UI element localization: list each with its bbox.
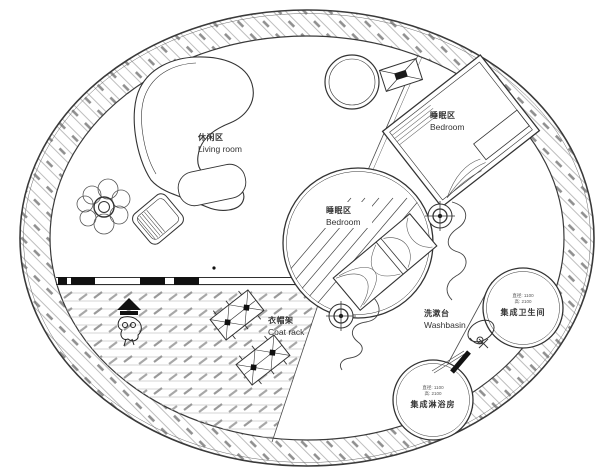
door-leaf-bar: [452, 352, 469, 372]
terrace-wall: [56, 277, 326, 285]
bathroom-spec-1: 直径: 1100: [512, 292, 534, 298]
label-living-zh: 休闲区: [197, 132, 224, 142]
bathroom-spec-2: 高: 2100: [514, 298, 532, 305]
shower-spec-1: 直径: 1100: [422, 384, 444, 390]
potted-plant: [77, 179, 130, 234]
integrated-shower-pod: 直径: 1100 高: 2100 集成淋浴房: [393, 360, 473, 440]
armchair: [130, 191, 187, 247]
label-coat-rack-en: Coat rack: [268, 327, 305, 337]
label-bedroom-top-en: Bedroom: [430, 122, 465, 132]
bathroom-name: 集成卫生间: [500, 307, 546, 317]
integrated-bathroom-pod: 直径: 1100 高: 2100 集成卫生间: [483, 268, 563, 348]
label-bedroom-pod-zh: 睡眠区: [326, 205, 352, 215]
floor-plan-svg: 直径: 1100 高: 2100 集成卫生间 直径: 1100 高: 2100 …: [0, 0, 611, 473]
label-living-en: Living room: [198, 144, 242, 154]
small-dot-marker: [212, 266, 215, 269]
label-bedroom-pod-en: Bedroom: [326, 217, 361, 227]
shower-spec-2: 高: 2100: [424, 390, 442, 397]
shower-name: 集成淋浴房: [410, 399, 456, 409]
round-table: [325, 55, 379, 109]
door-track-segments: [58, 277, 199, 285]
crossed-box-appliance: [380, 59, 423, 92]
label-washbasin-zh: 洗漱台: [424, 308, 450, 318]
label-washbasin-en: Washbasin: [424, 320, 466, 330]
label-coat-rack-zh: 衣帽架: [268, 315, 294, 325]
floor-plan-page: 直径: 1100 高: 2100 集成卫生间 直径: 1100 高: 2100 …: [0, 0, 611, 473]
label-bedroom-top-zh: 睡眠区: [430, 110, 456, 120]
